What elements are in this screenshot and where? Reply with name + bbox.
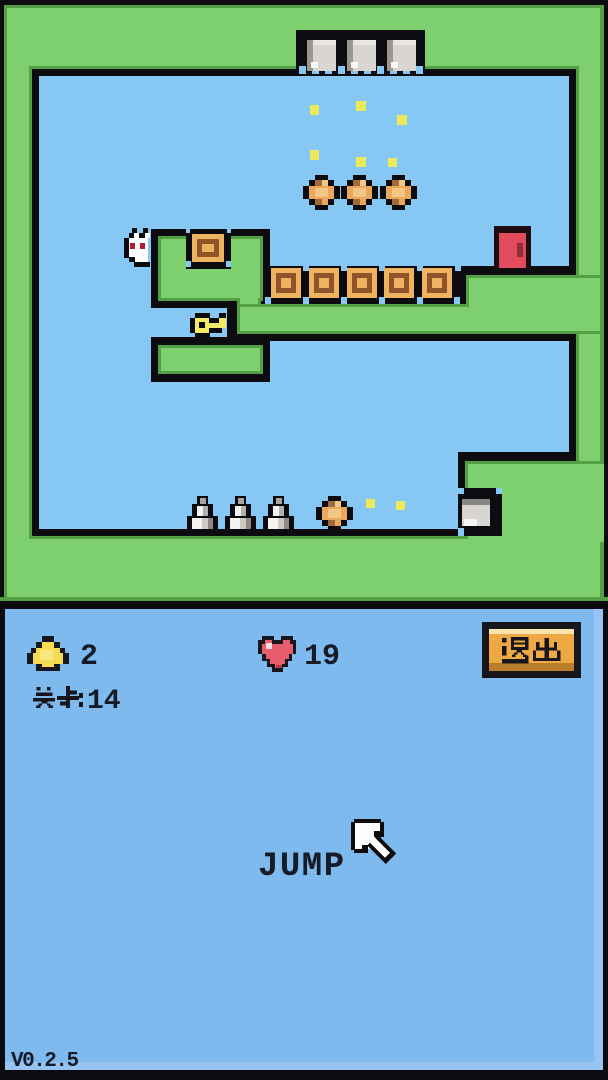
- svg-text:2: 2: [80, 640, 98, 674]
- svg-text:JUMP: JUMP: [258, 848, 346, 886]
- svg-text:19: 19: [304, 640, 340, 674]
- svg-text:V0.2.5: V0.2.5: [11, 1050, 79, 1073]
- svg-text:14: 14: [87, 686, 121, 717]
